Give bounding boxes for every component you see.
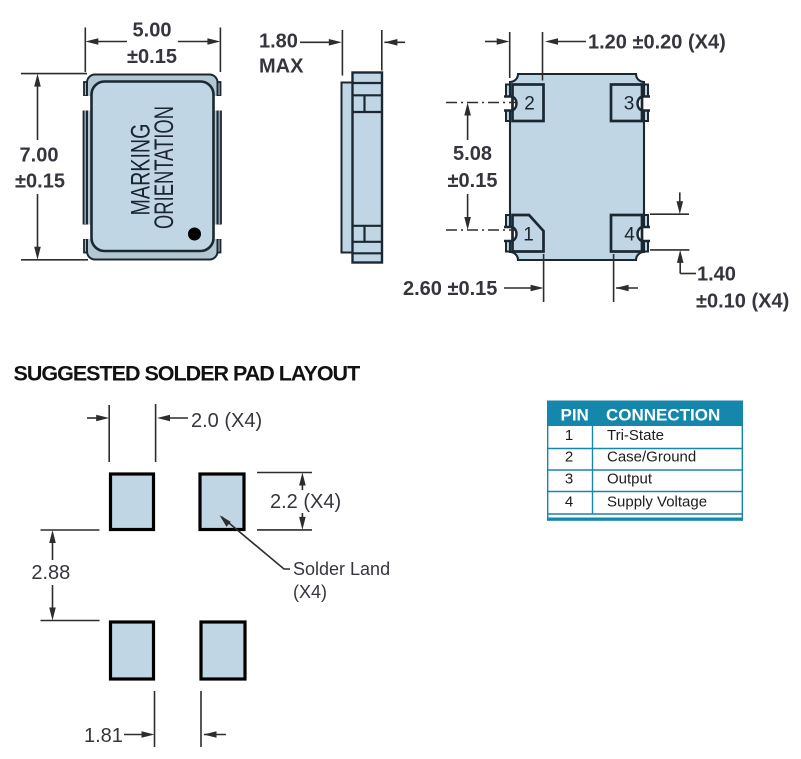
svg-text:2: 2 xyxy=(565,449,573,466)
svg-text:1.20 ±0.20 (X4): 1.20 ±0.20 (X4) xyxy=(588,31,726,53)
svg-text:2.88: 2.88 xyxy=(31,562,70,584)
svg-text:Output: Output xyxy=(607,471,653,488)
svg-text:Tri-State: Tri-State xyxy=(607,427,664,444)
svg-text:PIN: PIN xyxy=(561,406,589,425)
svg-text:Supply Voltage: Supply Voltage xyxy=(607,494,707,511)
svg-text:2.0 (X4): 2.0 (X4) xyxy=(191,410,262,432)
svg-text:1.81: 1.81 xyxy=(84,725,123,747)
svg-text:±0.15: ±0.15 xyxy=(448,170,498,192)
svg-text:1: 1 xyxy=(523,225,534,246)
svg-text:2.60 ±0.15: 2.60 ±0.15 xyxy=(403,278,497,300)
svg-text:3: 3 xyxy=(565,471,573,488)
svg-text:(X4): (X4) xyxy=(293,582,327,602)
svg-text:±0.15: ±0.15 xyxy=(127,46,177,68)
svg-text:ORIENTATION: ORIENTATION xyxy=(149,106,179,229)
svg-text:1.80: 1.80 xyxy=(259,31,298,53)
svg-text:4: 4 xyxy=(624,225,635,246)
svg-text:SUGGESTED SOLDER PAD LAYOUT: SUGGESTED SOLDER PAD LAYOUT xyxy=(14,362,361,386)
svg-text:Case/Ground: Case/Ground xyxy=(607,449,696,466)
svg-text:5.00: 5.00 xyxy=(133,20,172,42)
svg-text:2.2 (X4): 2.2 (X4) xyxy=(270,491,341,513)
svg-text:±0.15: ±0.15 xyxy=(15,171,65,193)
svg-text:5.08: 5.08 xyxy=(453,143,492,165)
svg-text:2: 2 xyxy=(524,94,535,115)
svg-text:3: 3 xyxy=(624,94,635,115)
svg-text:7.00: 7.00 xyxy=(20,145,59,167)
svg-text:±0.10 (X4): ±0.10 (X4) xyxy=(696,291,789,313)
svg-text:4: 4 xyxy=(565,494,573,511)
svg-text:MAX: MAX xyxy=(259,56,304,78)
svg-text:1.40: 1.40 xyxy=(697,263,736,285)
svg-text:CONNECTION: CONNECTION xyxy=(606,406,720,425)
svg-text:Solder Land: Solder Land xyxy=(293,559,390,579)
svg-text:1: 1 xyxy=(565,427,573,444)
